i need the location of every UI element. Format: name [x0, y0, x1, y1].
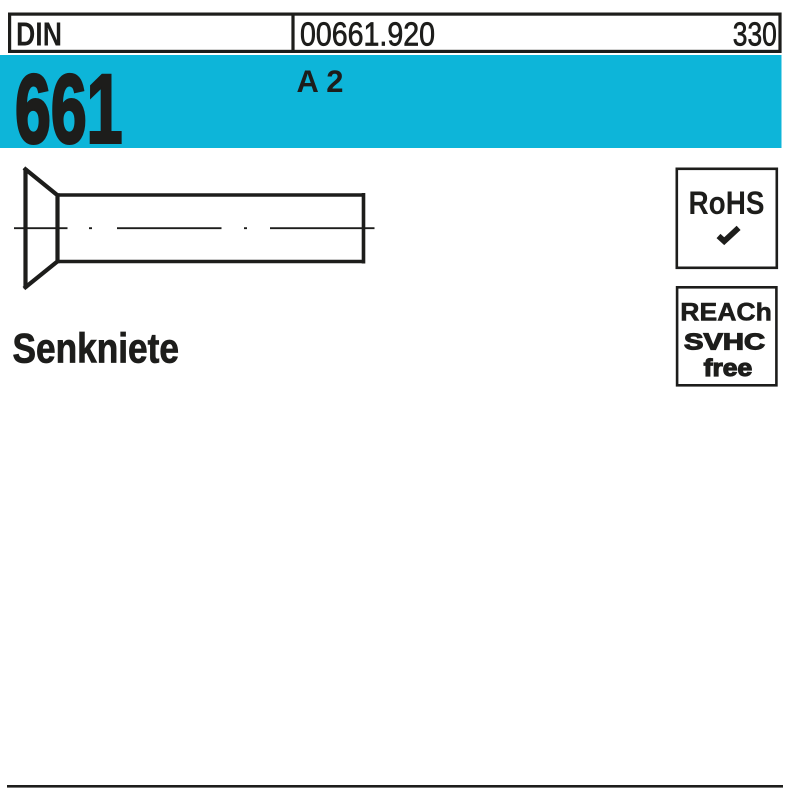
svg-text:Senkniete: Senkniete: [13, 324, 180, 371]
svg-text:00661.920: 00661.920: [300, 15, 435, 52]
svg-text:RoHS: RoHS: [689, 185, 765, 221]
svg-text:A 2: A 2: [297, 63, 344, 99]
svg-text:SVHC: SVHC: [684, 329, 765, 355]
svg-text:free: free: [704, 355, 753, 382]
svg-text:661: 661: [15, 54, 123, 163]
svg-text:330: 330: [733, 15, 777, 52]
svg-text:DIN: DIN: [16, 15, 62, 52]
svg-text:REACh: REACh: [680, 299, 772, 327]
